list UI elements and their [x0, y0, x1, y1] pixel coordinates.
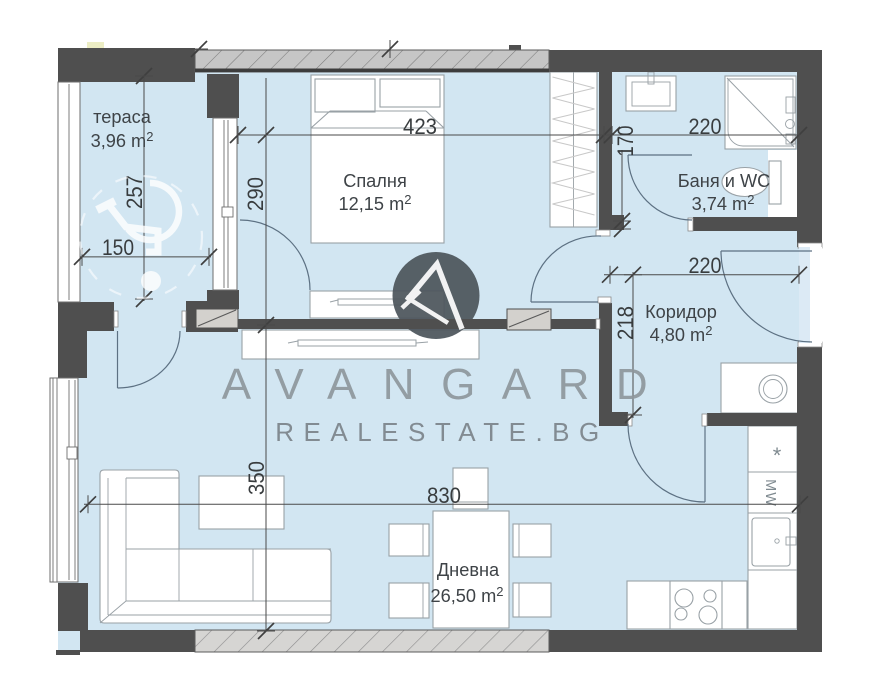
- svg-text:350: 350: [244, 461, 269, 495]
- svg-text:4,80 m2: 4,80 m2: [650, 323, 713, 345]
- svg-text:3,96 m2: 3,96 m2: [91, 129, 154, 151]
- svg-text:Баня и WC: Баня и WC: [678, 171, 771, 191]
- svg-text:Коридор: Коридор: [645, 302, 717, 322]
- svg-text:218: 218: [613, 306, 638, 340]
- svg-text:MW: MW: [762, 479, 778, 507]
- svg-text:830: 830: [427, 483, 461, 508]
- svg-text:220: 220: [689, 114, 722, 139]
- svg-text:Спалня: Спалня: [343, 171, 407, 191]
- svg-text:290: 290: [243, 177, 268, 211]
- svg-text:26,50 m2: 26,50 m2: [431, 584, 504, 606]
- svg-text:Дневна: Дневна: [437, 560, 500, 580]
- svg-text:150: 150: [102, 235, 134, 260]
- svg-text:тераса: тераса: [93, 107, 152, 127]
- svg-text:170: 170: [613, 126, 638, 157]
- svg-text:423: 423: [403, 114, 437, 139]
- svg-text:257: 257: [122, 175, 147, 209]
- svg-text:*: *: [773, 443, 782, 468]
- svg-text:REALESTATE.BG: REALESTATE.BG: [275, 417, 608, 447]
- svg-text:220: 220: [689, 253, 722, 278]
- svg-text:3,74 m2: 3,74 m2: [692, 192, 755, 214]
- svg-text:AVANGARD: AVANGARD: [222, 360, 674, 409]
- svg-text:12,15 m2: 12,15 m2: [339, 192, 412, 214]
